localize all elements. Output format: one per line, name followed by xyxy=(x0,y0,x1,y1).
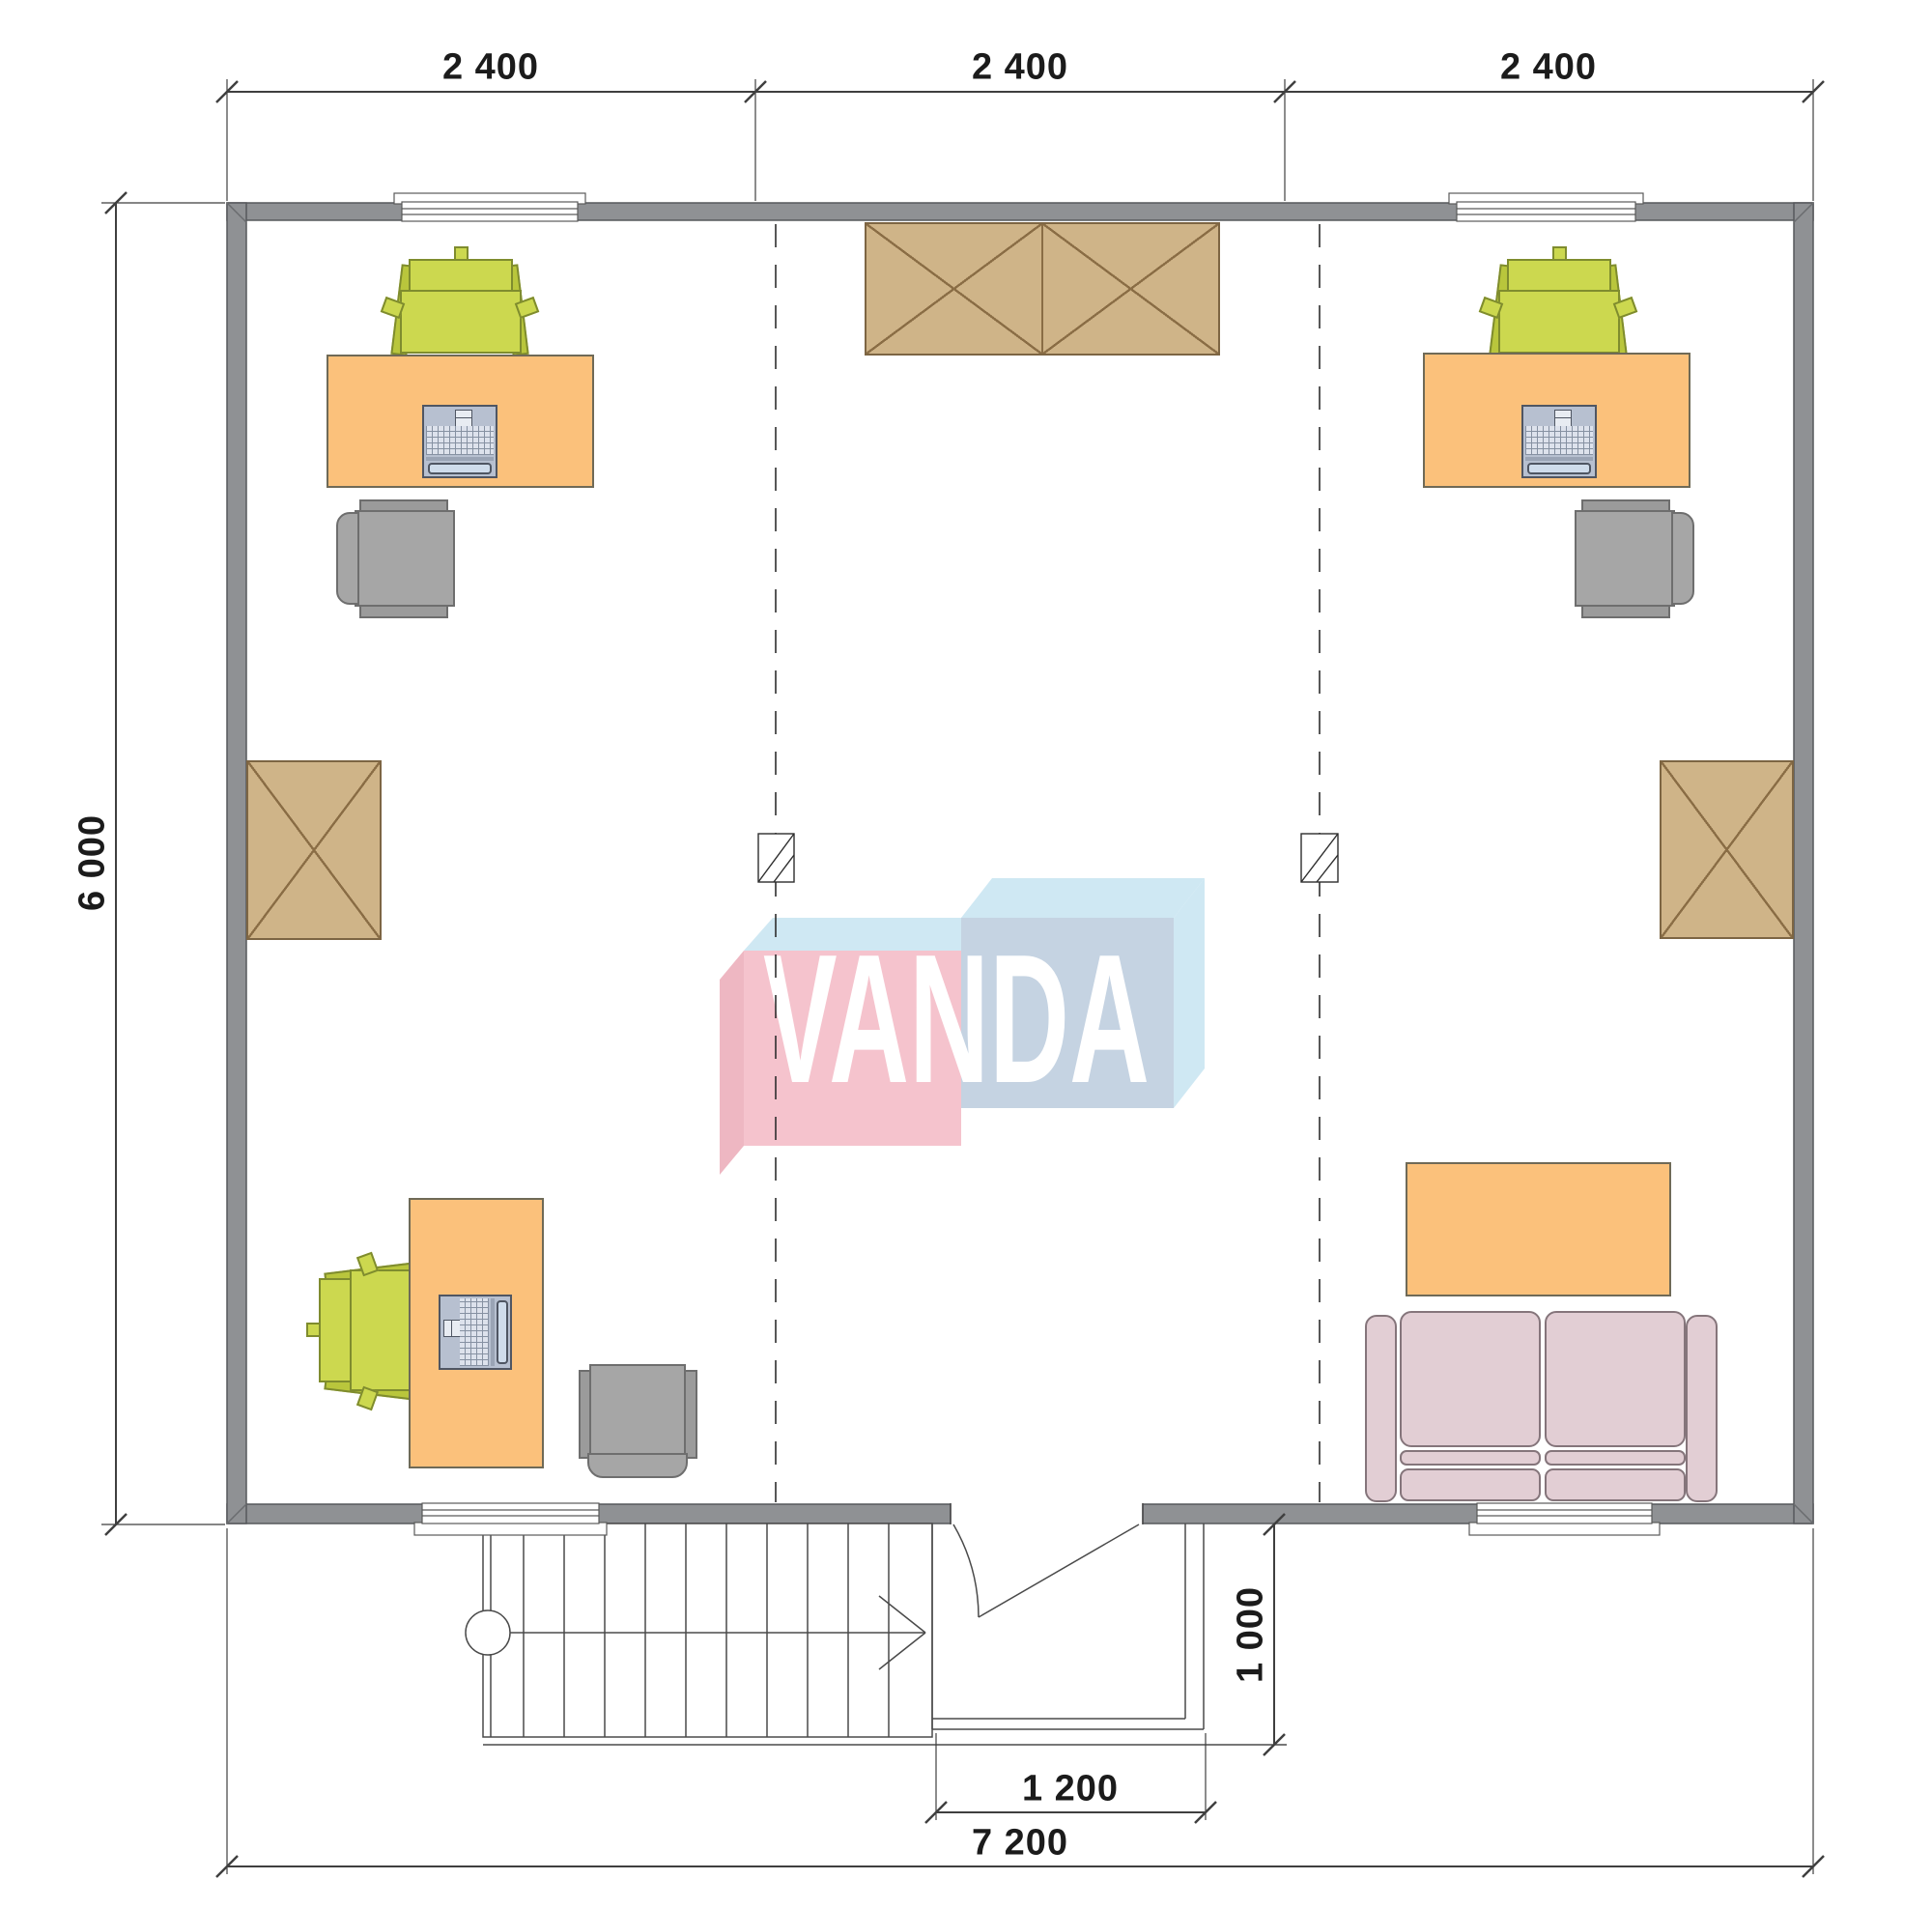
labels-layer: 2 400 2 400 2 400 6 000 1 000 1 200 7 20… xyxy=(0,0,1932,1908)
dim-label-entry-width: 1 200 xyxy=(1022,1769,1119,1810)
dim-label-left-height: 6 000 xyxy=(72,814,114,911)
dim-label-top-2: 2 400 xyxy=(972,47,1068,89)
dim-label-entry-depth: 1 000 xyxy=(1231,1586,1272,1683)
dim-label-top-1: 2 400 xyxy=(442,47,539,89)
dim-label-bottom-total: 7 200 xyxy=(972,1823,1068,1865)
floor-plan-canvas: VANDA xyxy=(0,0,1932,1908)
dim-label-top-3: 2 400 xyxy=(1500,47,1597,89)
